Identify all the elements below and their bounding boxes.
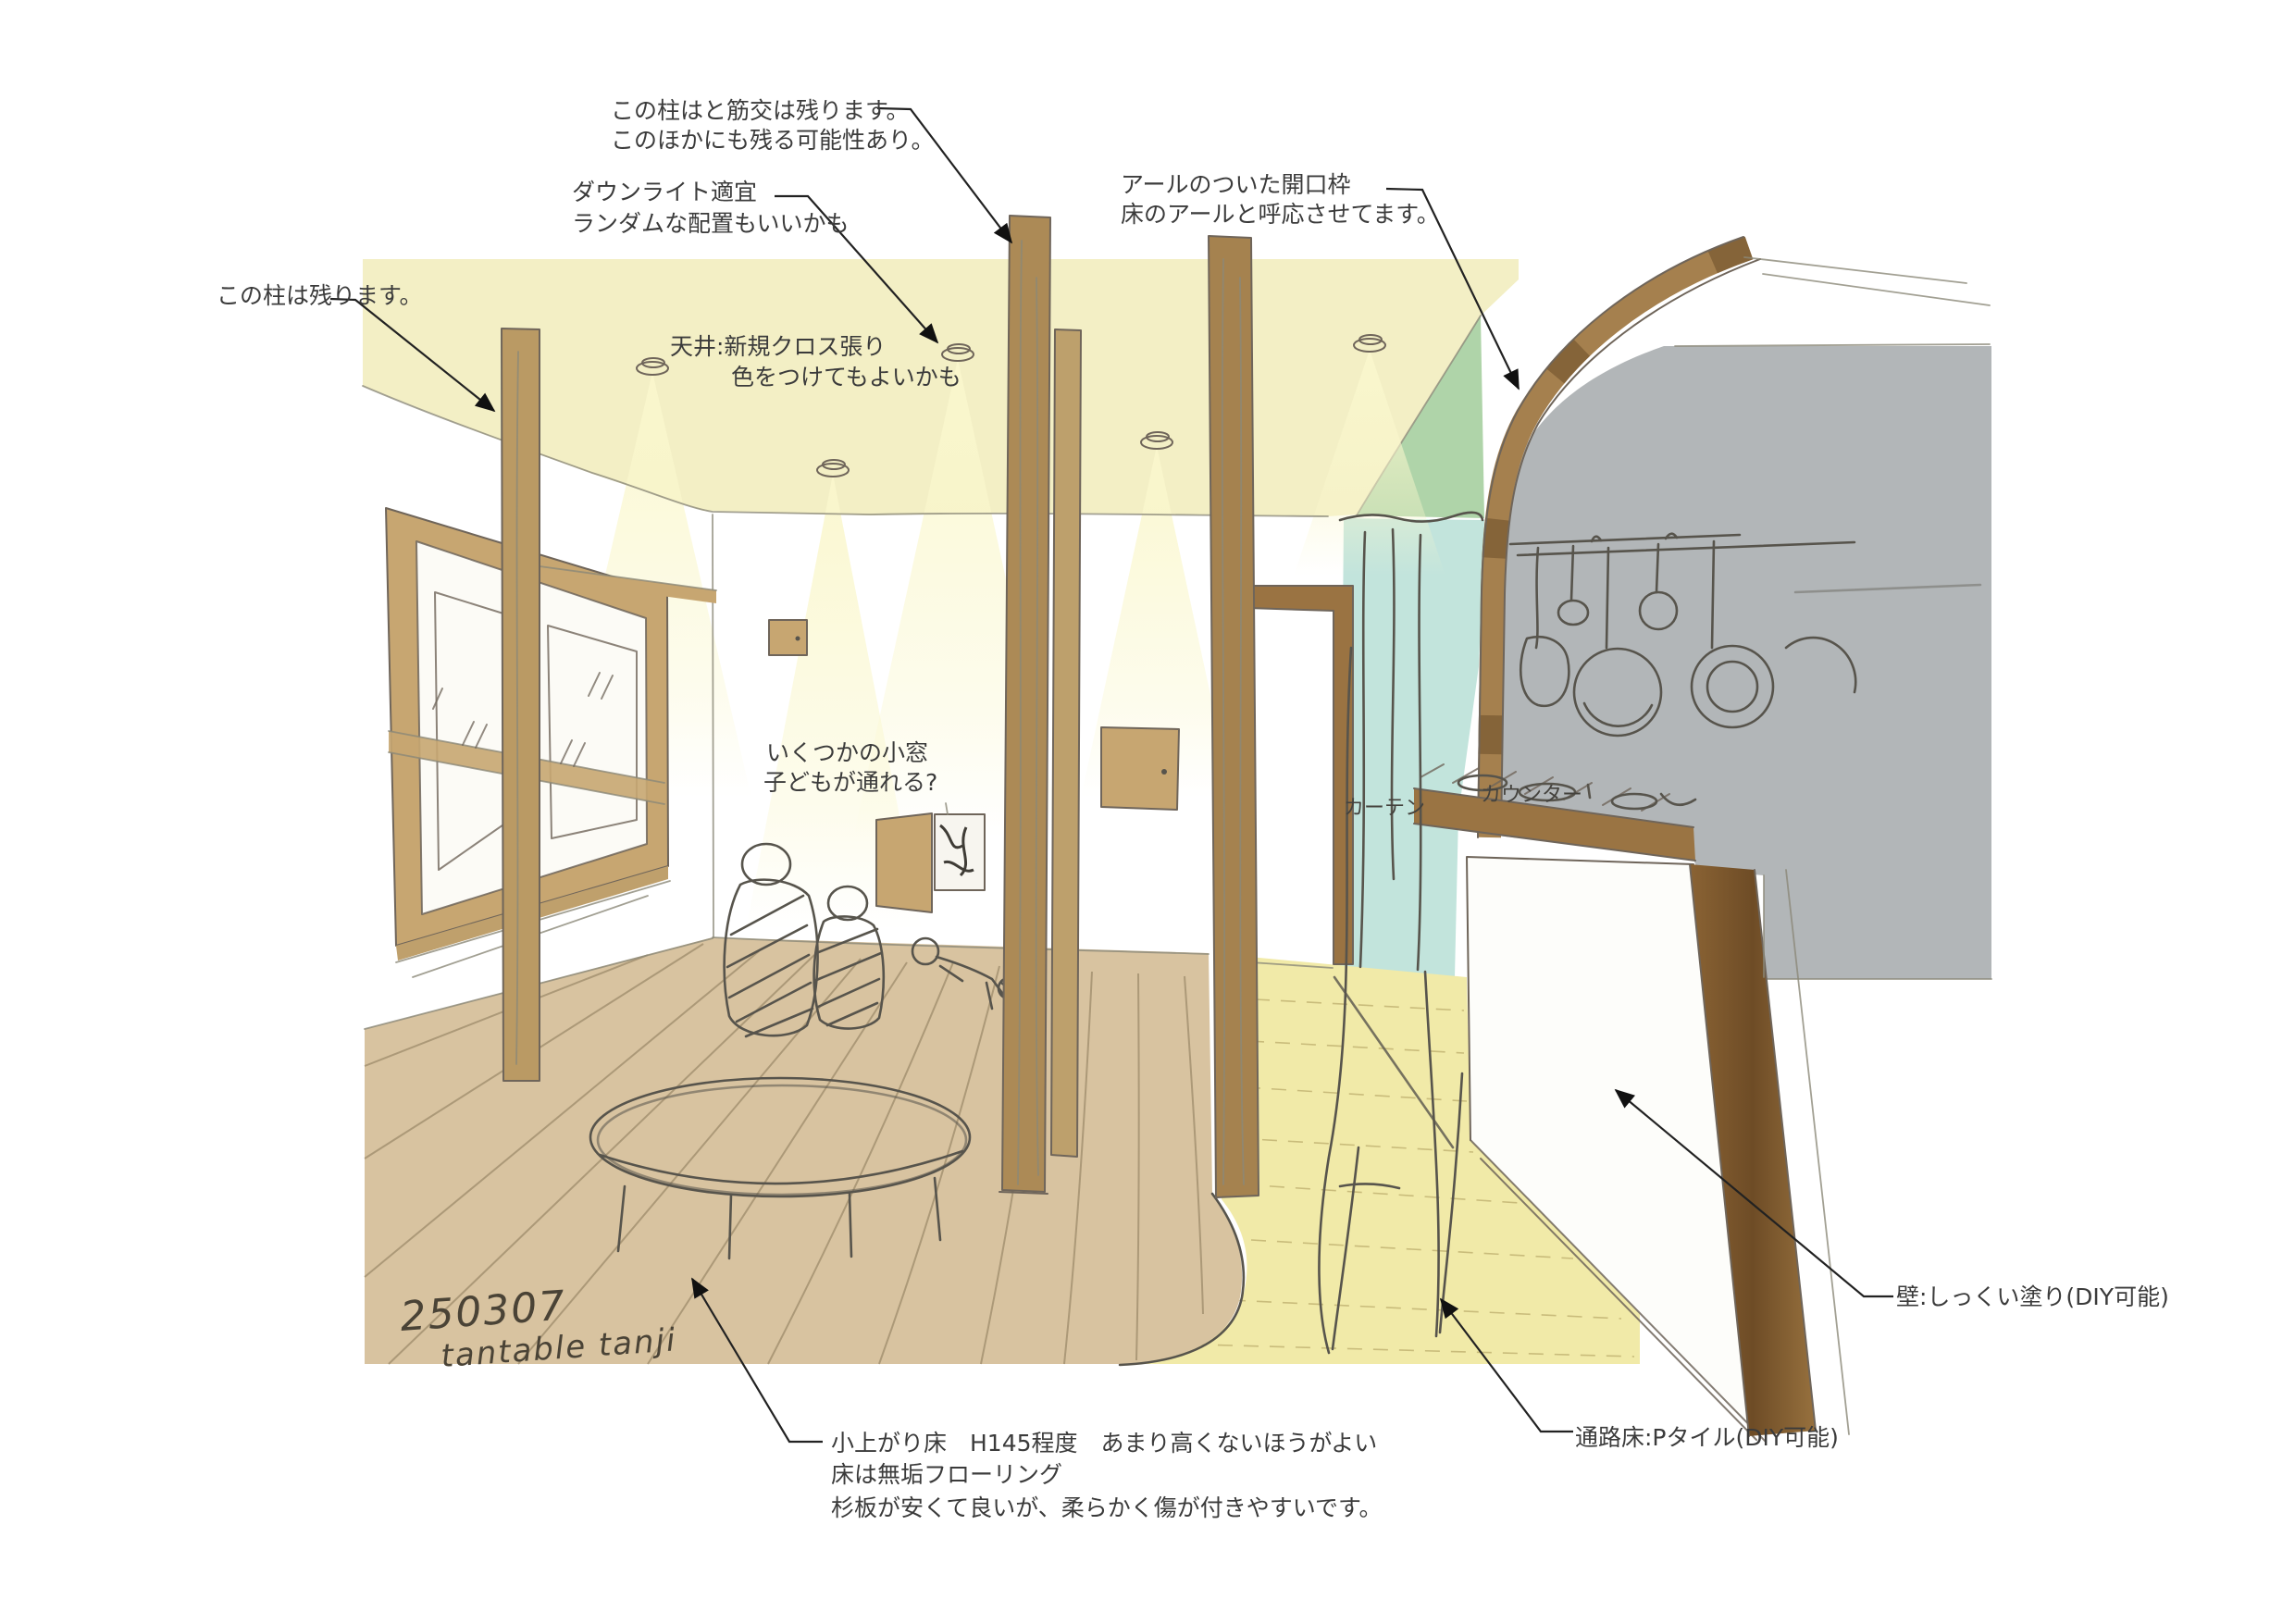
annotation-text: ダウンライト適宜	[572, 179, 757, 205]
curtain-label: カーテン	[1344, 797, 1425, 820]
annotation-text: 子どもが通れる?	[763, 769, 937, 796]
annotation-text: アールのついた開口枠	[1121, 171, 1351, 198]
annotation-pillar-keep-note: この柱は残ります。	[217, 282, 423, 309]
pillar-left	[502, 329, 540, 1081]
annotation-text: この柱はと筋交は残ります。	[611, 97, 910, 124]
annotation-text: 杉板が安くて良いが、柔らかく傷が付きやすいです。	[831, 1494, 1383, 1521]
annotation-text: 色をつけてもよいかも	[731, 364, 961, 391]
passage-floor-label: 通路床:Pタイル(DIY可能)	[1575, 1424, 1839, 1451]
small-wall-opening-2	[1101, 727, 1179, 810]
sketch-canvas: この柱はと筋交は残ります。 このほかにも残る可能性あり。 ダウンライト適宜 ラン…	[0, 0, 2295, 1624]
annotation-text: この柱は残ります。	[217, 282, 423, 309]
annotation-text: 天井:新規クロス張り	[670, 333, 886, 360]
pillar-brace	[1051, 329, 1081, 1157]
counter-label: カウンター	[1481, 784, 1582, 807]
sketch-page: この柱はと筋交は残ります。 このほかにも残る可能性あり。 ダウンライト適宜 ラン…	[0, 0, 2295, 1624]
small-wall-opening-1	[769, 620, 807, 655]
annotation-text: 小上がり床 H145程度 あまり高くないほうがよい	[831, 1430, 1377, 1457]
annotation-text: 床は無垢フローリング	[831, 1461, 1062, 1488]
annotation-text: いくつかの小窓	[766, 739, 928, 766]
annotation-text: 床のアールと呼応させてます。	[1121, 201, 1440, 228]
annotation-text: ランダムな配置もいいかも	[572, 210, 850, 237]
wall-label: 壁:しっくい塗り(DIY可能)	[1896, 1283, 2169, 1310]
pillar-right	[1209, 236, 1259, 1197]
annotation-text: このほかにも残る可能性あり。	[611, 127, 935, 154]
